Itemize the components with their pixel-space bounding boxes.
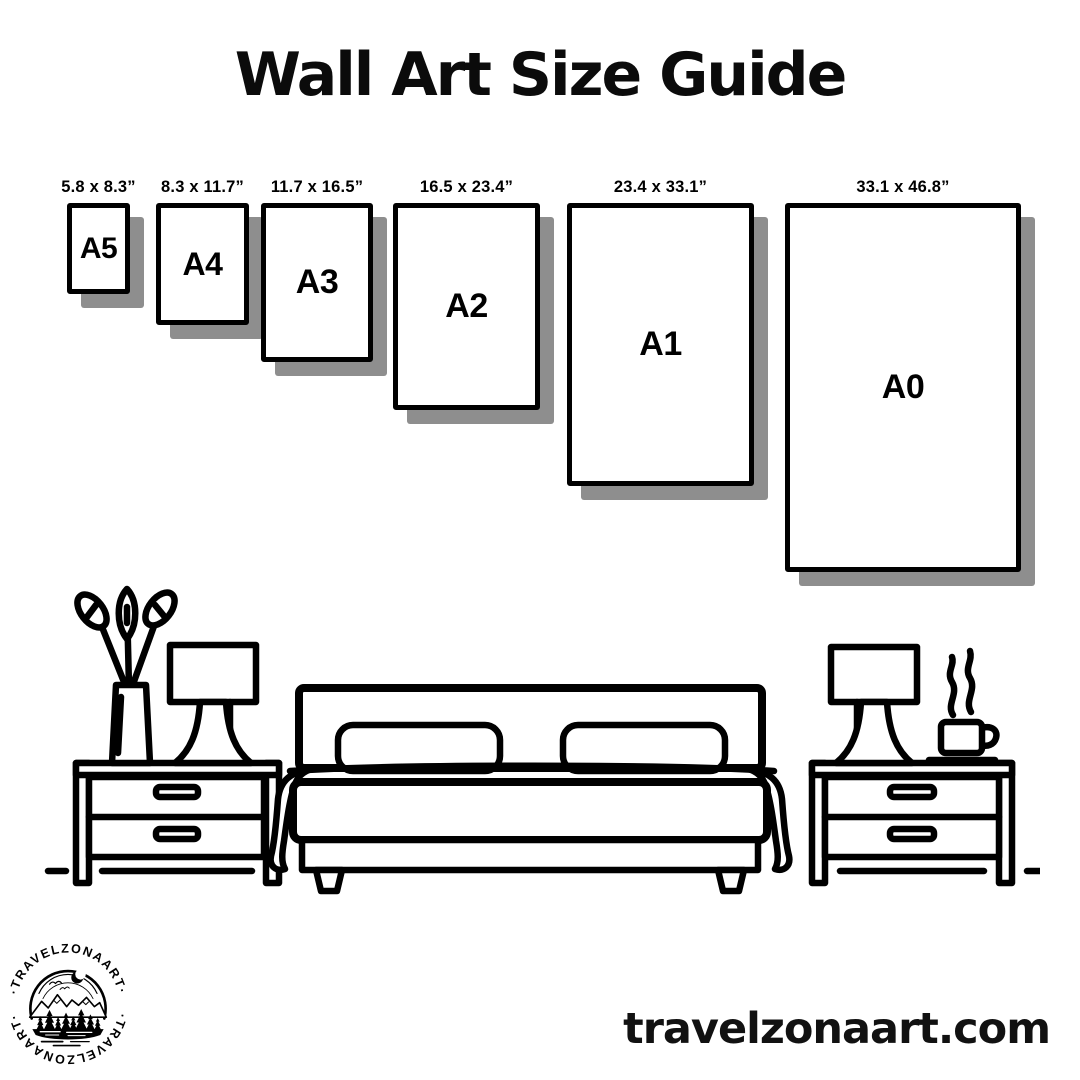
poster-a3: 11.7 x 16.5” A3	[261, 203, 373, 362]
logo-arc-text-top: ·TRAVELZONAART·	[6, 941, 129, 995]
bed	[271, 688, 790, 891]
poster-a2-dimensions: 16.5 x 23.4”	[420, 178, 513, 197]
drawer-handle-icon	[890, 787, 934, 797]
poster-a2-label: A2	[445, 287, 487, 326]
lamp-left-icon	[170, 645, 256, 763]
lamp-right-icon	[831, 647, 917, 763]
bed-base	[302, 840, 758, 870]
poster-a5-label: A5	[80, 232, 117, 266]
bird-icon	[60, 987, 69, 989]
nightstand-left	[76, 763, 279, 883]
poster-a3-label: A3	[296, 263, 338, 302]
poster-a5-sheet: A5	[67, 203, 130, 294]
nightstand-right	[812, 763, 1012, 883]
poster-a1-sheet: A1	[567, 203, 754, 486]
poster-a1-label: A1	[639, 325, 681, 364]
page-title: Wall Art Size Guide	[0, 40, 1080, 110]
poster-a5: 5.8 x 8.3” A5	[67, 203, 130, 294]
poster-a1-dimensions: 23.4 x 33.1”	[614, 178, 707, 197]
bed-leg	[316, 870, 342, 891]
poster-a2: 16.5 x 23.4” A2	[393, 203, 540, 410]
poster-a3-sheet: A3	[261, 203, 373, 362]
logo-scene	[30, 969, 107, 1046]
bed-leg	[718, 870, 744, 891]
poster-a0: 33.1 x 46.8” A0	[785, 203, 1021, 572]
poster-a4-dimensions: 8.3 x 11.7”	[161, 178, 244, 197]
website-url: travelzonaart.com	[623, 1004, 1050, 1054]
poster-a5-dimensions: 5.8 x 8.3”	[61, 178, 135, 197]
lake-water	[32, 1029, 103, 1046]
poster-a1: 23.4 x 33.1” A1	[567, 203, 754, 486]
poster-a4-sheet: A4	[156, 203, 249, 325]
size-guide-poster: Wall Art Size Guide 5.8 x 8.3” A5 8.3 x …	[0, 0, 1080, 1080]
coffee-cup-icon	[929, 651, 996, 760]
brand-logo-badge: ·TRAVELZONAART· ·TRAVELZONAART·	[2, 936, 134, 1072]
poster-a0-label: A0	[882, 368, 924, 407]
poster-a0-sheet: A0	[785, 203, 1021, 572]
mountains	[30, 995, 107, 1017]
drawer-handle-icon	[890, 829, 934, 839]
poster-a3-dimensions: 11.7 x 16.5”	[271, 178, 363, 197]
poster-a4: 8.3 x 11.7” A4	[156, 203, 249, 325]
plant-icon	[72, 587, 181, 763]
svg-text:·TRAVELZONAART·: ·TRAVELZONAART·	[6, 941, 129, 995]
drawer-handle-icon	[156, 829, 198, 839]
drawer-handle-icon	[156, 787, 198, 797]
poster-a4-label: A4	[183, 246, 223, 283]
mattress	[293, 782, 767, 840]
poster-a2-sheet: A2	[393, 203, 540, 410]
bedroom-illustration	[40, 585, 1040, 895]
poster-a0-dimensions: 33.1 x 46.8”	[856, 178, 949, 197]
